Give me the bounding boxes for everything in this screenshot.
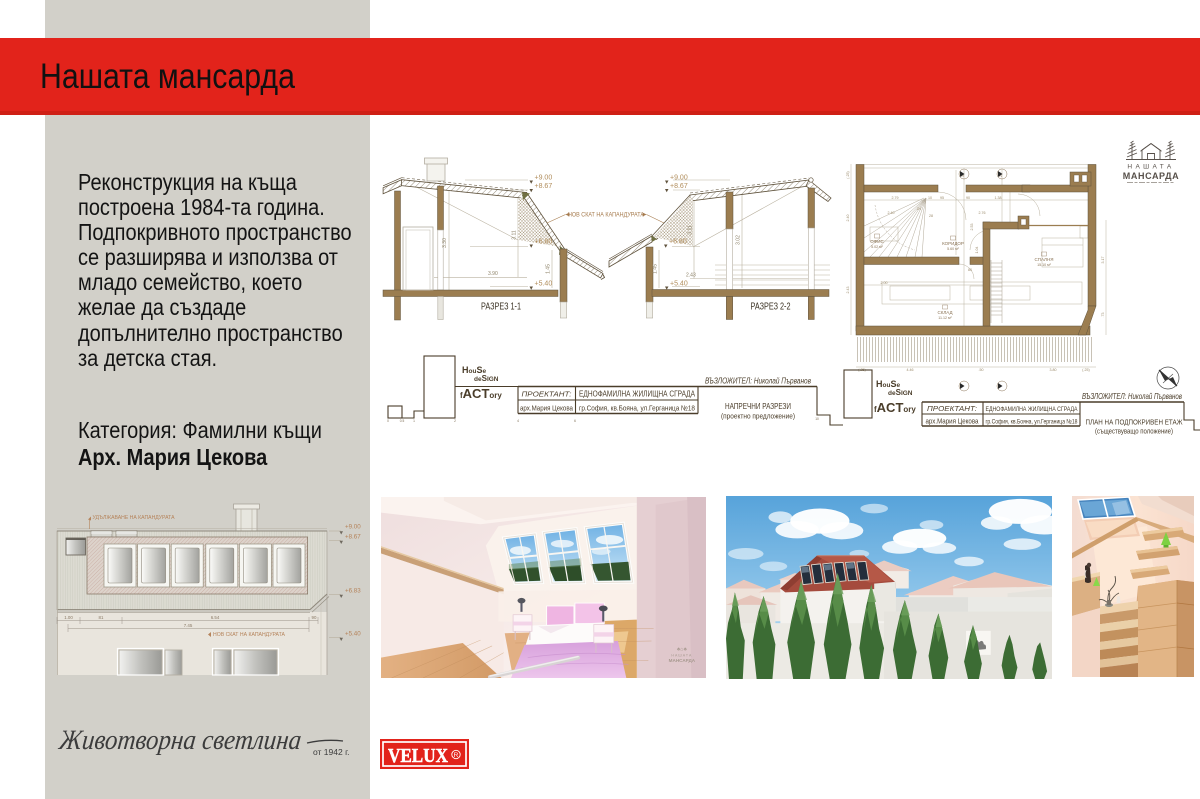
svg-text:2.79: 2.79 <box>892 196 899 200</box>
svg-text:2.00: 2.00 <box>881 281 888 285</box>
svg-text:5.02 м²: 5.02 м² <box>871 245 883 249</box>
svg-text:80: 80 <box>968 268 972 272</box>
svg-text:ВЪЗЛОЖИТЕЛ: Николай Първанов: ВЪЗЛОЖИТЕЛ: Николай Първанов <box>1082 392 1182 401</box>
svg-text:♣⌂♣: ♣⌂♣ <box>677 647 688 653</box>
svg-text:.50: .50 <box>979 368 984 372</box>
svg-text:fACTory: fACTory <box>874 400 916 415</box>
svg-text:НОВ СКАТ НА КАПАНДУРАТА: НОВ СКАТ НА КАПАНДУРАТА <box>213 632 286 638</box>
svg-text:1: 1 <box>413 419 415 423</box>
svg-text:2: 2 <box>454 419 456 423</box>
svg-text:ЕДНОФАМИЛНА ЖИЛИЩНА СГРАДА: ЕДНОФАМИЛНА ЖИЛИЩНА СГРАДА <box>579 390 696 399</box>
svg-text:(.25): (.25) <box>846 171 850 178</box>
svg-text:28: 28 <box>929 214 933 218</box>
svg-text:90: 90 <box>966 196 970 200</box>
svg-text:95: 95 <box>940 196 944 200</box>
svg-text:1.00: 1.00 <box>64 615 73 620</box>
svg-text:ПЛАН НА ПОДПОКРИВЕН ЕТАЖ: ПЛАН НА ПОДПОКРИВЕН ЕТАЖ <box>1086 418 1183 427</box>
svg-text:ОФИС: ОФИС <box>870 239 884 244</box>
svg-text:+8.67: +8.67 <box>535 183 553 190</box>
svg-text:арх.Мария Цекова: арх.Мария Цекова <box>520 404 574 413</box>
svg-text:НАШАТА: НАШАТА <box>671 654 692 658</box>
svg-text:1.45: 1.45 <box>653 264 659 274</box>
svg-text:VELUX: VELUX <box>388 745 448 767</box>
svg-text:3.17: 3.17 <box>1101 257 1105 264</box>
svg-text:+9.00: +9.00 <box>535 175 553 182</box>
svg-text:2.40: 2.40 <box>888 211 895 215</box>
svg-text:3.80: 3.80 <box>1050 368 1057 372</box>
svg-text:2.76: 2.76 <box>979 211 986 215</box>
svg-text:ПРОЕКТАНТ:: ПРОЕКТАНТ: <box>522 390 572 399</box>
svg-text:СКЛАД: СКЛАД <box>937 310 952 315</box>
svg-text:deSIGN: deSIGN <box>474 374 499 383</box>
svg-text:11.12 м²: 11.12 м² <box>938 316 952 320</box>
svg-text:СПАЛНЯ: СПАЛНЯ <box>1034 257 1053 262</box>
svg-text:4: 4 <box>517 419 519 423</box>
svg-text:ПРОЕКТАНТ:: ПРОЕКТАНТ: <box>927 404 977 413</box>
svg-text:1.04: 1.04 <box>975 247 979 254</box>
svg-text:.73: .73 <box>1101 313 1105 318</box>
svg-text:R: R <box>454 752 459 759</box>
svg-text:15.10 м²: 15.10 м² <box>1037 263 1051 267</box>
svg-text:(съществуващо положение): (съществуващо положение) <box>1095 429 1173 436</box>
svg-text:(проектно предложение): (проектно предложение) <box>721 412 795 421</box>
svg-text:7.45: 7.45 <box>184 623 193 628</box>
svg-text:90: 90 <box>312 615 317 620</box>
svg-text:Животворна светлина: Животворна светлина <box>57 725 303 756</box>
svg-text:+9.00: +9.00 <box>670 175 688 182</box>
svg-text:+8.67: +8.67 <box>670 183 688 190</box>
svg-text:+5.40: +5.40 <box>345 631 361 638</box>
svg-text:гр.София, кв.Бояна, ул.Гергани: гр.София, кв.Бояна, ул.Герганица №18 <box>579 404 695 413</box>
svg-text:10: 10 <box>815 417 819 421</box>
svg-text:3.11: 3.11 <box>688 225 694 235</box>
svg-text:10: 10 <box>928 196 932 200</box>
svg-text:3.30: 3.30 <box>442 238 448 248</box>
svg-text:+5.40: +5.40 <box>535 281 553 288</box>
svg-text:3.11: 3.11 <box>512 230 518 240</box>
svg-text:1.38: 1.38 <box>995 196 1002 200</box>
svg-text:6.54: 6.54 <box>211 615 220 620</box>
svg-text:УДЪЛЖАВАНЕ НА КАПАНДУРАТА: УДЪЛЖАВАНЕ НА КАПАНДУРАТА <box>93 515 176 521</box>
svg-text:3.02: 3.02 <box>736 235 742 245</box>
svg-text:deSIGN: deSIGN <box>888 388 913 397</box>
svg-text:РАЗРЕЗ 1-1: РАЗРЕЗ 1-1 <box>481 302 521 313</box>
svg-text:6: 6 <box>574 419 576 423</box>
svg-text:арх.Мария Цекова: арх.Мария Цекова <box>926 417 980 426</box>
svg-text:fACTory: fACTory <box>460 386 502 401</box>
svg-text:НАПРЕЧНИ РАЗРЕЗИ: НАПРЕЧНИ РАЗРЕЗИ <box>725 402 791 411</box>
svg-text:ЕДНОФАМИЛНА ЖИЛИЩНА СГРАДА: ЕДНОФАМИЛНА ЖИЛИЩНА СГРАДА <box>986 406 1078 413</box>
svg-text:ВЪЗЛОЖИТЕЛ: Николай Първанов: ВЪЗЛОЖИТЕЛ: Николай Първанов <box>705 377 811 386</box>
svg-text:+9.00: +9.00 <box>345 524 361 531</box>
svg-text:КОРИДОР: КОРИДОР <box>942 241 964 246</box>
svg-text:РАЗРЕЗ 2-2: РАЗРЕЗ 2-2 <box>751 302 791 313</box>
svg-text:3.90: 3.90 <box>488 271 498 277</box>
svg-text:МАНСАРДА: МАНСАРДА <box>1123 171 1179 181</box>
svg-text:0: 0 <box>387 419 389 423</box>
svg-text:1.45: 1.45 <box>546 264 552 274</box>
svg-text:5.60 м²: 5.60 м² <box>947 247 959 251</box>
svg-text:НАШАТА: НАШАТА <box>1127 164 1174 171</box>
svg-text:+6.80: +6.80 <box>535 239 553 246</box>
svg-text:НОВ СКАТ НА КАПАНДУРАТА: НОВ СКАТ НА КАПАНДУРАТА <box>568 213 644 219</box>
svg-text:4.46: 4.46 <box>907 368 914 372</box>
svg-text:+5.40: +5.40 <box>670 281 688 288</box>
svg-text:81: 81 <box>99 615 104 620</box>
svg-text:2.43: 2.43 <box>846 287 850 294</box>
svg-text:+8.67: +8.67 <box>345 534 361 541</box>
svg-text:(.25): (.25) <box>1082 368 1089 372</box>
svg-text:+6.83: +6.83 <box>345 588 361 595</box>
svg-text:24: 24 <box>917 207 921 211</box>
svg-text:от 1942 г.: от 1942 г. <box>313 747 350 757</box>
svg-text:2.53: 2.53 <box>970 224 974 231</box>
svg-text:2.43: 2.43 <box>686 273 696 279</box>
svg-text:0.5: 0.5 <box>400 419 405 423</box>
svg-text:2.40: 2.40 <box>846 215 850 222</box>
svg-text:гр.София, кв.Бояна, ул.Гергани: гр.София, кв.Бояна, ул.Герганица №18 <box>986 419 1078 426</box>
svg-text:+6.80: +6.80 <box>669 239 687 246</box>
svg-text:МАНСАРДА: МАНСАРДА <box>669 658 696 663</box>
